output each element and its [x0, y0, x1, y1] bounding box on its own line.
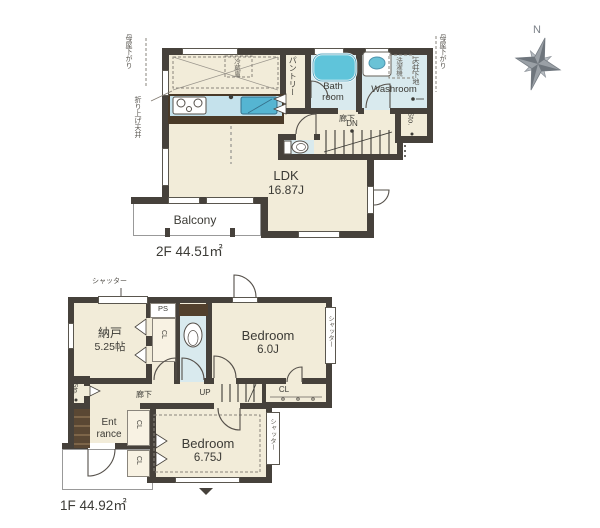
ps-label: PS [150, 305, 176, 314]
closet-stairs-label: CL [272, 385, 296, 394]
compass-shading [509, 32, 567, 96]
wall [302, 378, 332, 384]
bedroom2-name: Bedroom [165, 437, 251, 452]
moyasagari-right-label: 母屋下がり [438, 34, 446, 69]
wall [427, 48, 433, 143]
wall [240, 403, 266, 409]
bedroom1-size: 6.0J [225, 344, 311, 357]
window [367, 186, 374, 214]
wall [280, 48, 286, 94]
window [168, 197, 200, 204]
wall [356, 48, 362, 112]
moyasagari-left-label: 母屋下がり [124, 34, 132, 69]
wall [84, 376, 90, 386]
window [175, 477, 240, 483]
wall [266, 402, 332, 408]
wall [150, 403, 214, 409]
area-label-1f: 1F 44.92㎡ [60, 498, 127, 514]
room-toilet-1f [178, 306, 208, 382]
storage-label-1f: Sto. [71, 383, 78, 395]
room-toilet-2f [282, 140, 314, 155]
kitchen-counter [168, 94, 284, 118]
hallway-label-1f: 廊下 [130, 390, 158, 399]
window [232, 297, 258, 303]
shutter-label-top: シャッター [92, 278, 127, 286]
closet-b-label: CL [134, 456, 142, 465]
wall [397, 142, 403, 160]
pantry-label: パントリー [288, 56, 297, 96]
ldk-name: LDK [246, 169, 326, 184]
kitchen-counter-base [168, 116, 284, 124]
entrance-label: Ent rance [88, 417, 130, 440]
nando-size: 5.25帖 [80, 341, 140, 353]
shutter-label-bed675: シャッター [268, 418, 275, 451]
closet-tall-label: CL [159, 330, 167, 339]
window [298, 231, 340, 238]
compass-north-label: N [533, 24, 541, 37]
window [314, 48, 344, 55]
stairs-up-label: UP [196, 388, 214, 397]
room-label-bedroom675: Bedroom 6.75J [165, 437, 251, 465]
closet-a-label: CL [134, 420, 142, 429]
wall [240, 477, 272, 483]
wall [204, 378, 214, 384]
balcony-label: Balcony [155, 214, 235, 228]
bedroom2-size: 6.75J [165, 452, 251, 465]
entrance-line2: rance [88, 429, 130, 441]
wall [236, 378, 286, 384]
nando-name: 納戸 [80, 327, 140, 341]
compass-minor-points [518, 44, 559, 85]
wall [395, 136, 433, 143]
bottom-window-mark [199, 488, 213, 495]
bathroom-label: Bath room [310, 82, 356, 104]
room-label-nando: 納戸 5.25帖 [80, 327, 140, 353]
window-shutter-nando [98, 296, 148, 304]
opening-dot [404, 145, 406, 147]
wall [278, 154, 403, 160]
compass-major-points [509, 32, 567, 96]
room-label-bedroom6: Bedroom 6.0J [225, 329, 311, 357]
storage-label-2f: Sto. [406, 112, 415, 125]
closet-tall [152, 318, 176, 362]
window [182, 48, 238, 55]
floor-plan: LDK 16.87J Balcony Bath room Washroom パン… [0, 0, 600, 528]
casement-window-arc [234, 275, 256, 297]
window [365, 48, 389, 55]
opening-dot [404, 155, 406, 157]
bath-line2: room [310, 93, 356, 104]
window [206, 197, 254, 204]
compass-rose-icon [509, 32, 567, 96]
ldk-casement-arc [374, 190, 389, 205]
wall [176, 378, 180, 384]
bedroom1-name: Bedroom [225, 329, 311, 344]
shutter-label-bed6: シャッター [326, 315, 333, 348]
balcony-post [230, 228, 235, 237]
window [162, 148, 169, 186]
wall [314, 134, 320, 140]
window [162, 70, 169, 96]
washer-label: 洗濯機 [394, 57, 401, 77]
area-label-2f: 2F 44.51㎡ [156, 244, 223, 260]
washroom-label: Washroom [362, 85, 426, 96]
oriage-tenjo-label: 折り上げ天井 [133, 96, 141, 138]
ldk-size: 16.87J [246, 184, 326, 198]
window [68, 323, 74, 349]
wall [262, 378, 266, 403]
opening-dot [404, 150, 406, 152]
tenjo-shitaji-label: 天井下地 [411, 57, 419, 85]
balcony-post [165, 228, 170, 237]
entrance-line1: Ent [88, 417, 130, 429]
room-label-ldk: LDK 16.87J [246, 169, 326, 198]
wall [150, 403, 156, 483]
toilet-counter-1f [179, 304, 208, 316]
stairs-dn-label: DN [342, 119, 362, 128]
fridge-label: 冷蔵庫 [232, 58, 239, 78]
